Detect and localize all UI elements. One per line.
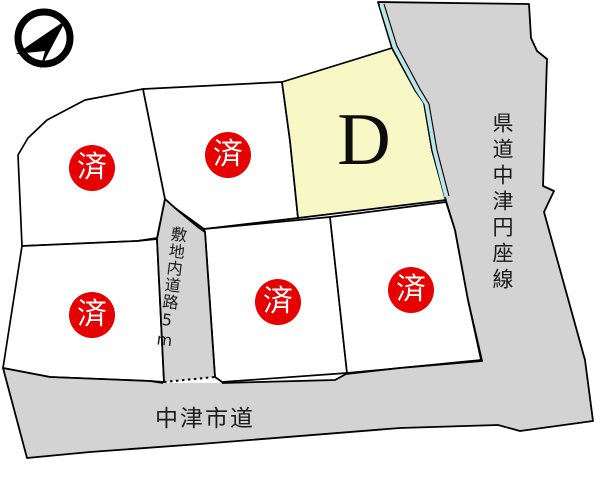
sold-badge-lot-1: 済: [69, 145, 115, 191]
prefectural-road-label: 県道中津円座線: [487, 112, 517, 294]
sold-badge-lot-5: 済: [388, 267, 434, 313]
site-plan: 県道中津円座線 敷地内道路5m 中津市道 D 済 済 済 済 済: [0, 0, 600, 483]
lot-d-label: D: [326, 98, 402, 182]
sold-badge-lot-4: 済: [255, 279, 301, 325]
sold-badge-lot-2: 済: [205, 132, 251, 178]
sold-badge-lot-3: 済: [69, 292, 115, 338]
north-arrow-icon: [16, 12, 70, 69]
city-road-label: 中津市道: [155, 399, 255, 433]
